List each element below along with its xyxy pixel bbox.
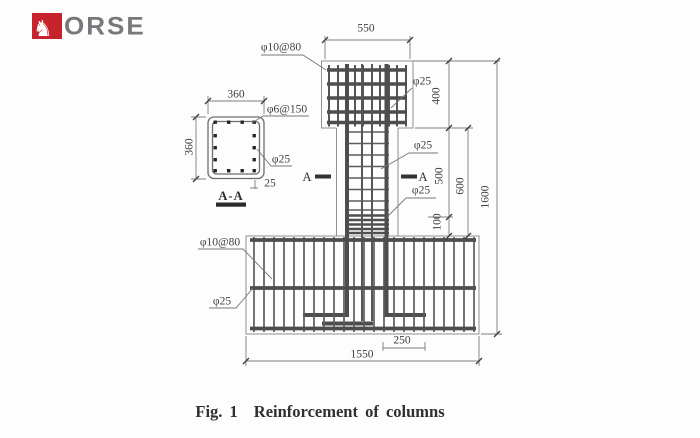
- head-bar-label: φ25: [413, 76, 431, 88]
- footing-stirrup-label: φ10@80: [200, 237, 240, 249]
- section-title: A-A: [218, 190, 243, 203]
- dim-360-left-label: 360: [184, 138, 196, 155]
- reinforcement-diagram-linework: [0, 0, 700, 438]
- dim-100-label: 100: [432, 213, 444, 230]
- column-bar-lower-label: φ25: [412, 185, 430, 197]
- dim-1550-label: 1550: [351, 349, 374, 361]
- figure-page: ♞ ORSE: [0, 0, 700, 438]
- dim-1600-label: 1600: [480, 186, 492, 209]
- head-stirrup-label: φ10@80: [261, 42, 301, 54]
- column-head-rebar: [327, 65, 407, 127]
- section-marker-a-right: A: [418, 171, 427, 184]
- section-stirrup-label: φ6@150: [267, 104, 307, 116]
- dim-550-label: 550: [357, 23, 374, 35]
- section-marker-a-left: A: [302, 171, 311, 184]
- section-rebar-dots: [214, 121, 256, 173]
- cover-25-label: 25: [264, 178, 276, 190]
- dim-400-label: 400: [431, 87, 443, 104]
- section-bar-label: φ25: [272, 154, 290, 166]
- column-bar-upper-label: φ25: [414, 140, 432, 152]
- section-title-underline: [216, 203, 246, 207]
- dim-600-label: 600: [455, 177, 467, 194]
- dim-360-top-label: 360: [227, 89, 244, 101]
- figure-title: Reinforcement of columns: [254, 402, 445, 421]
- footing-bar-label: φ25: [213, 296, 231, 308]
- dim-500-label: 500: [434, 167, 446, 184]
- figure-number: Fig. 1: [195, 402, 237, 421]
- figure-caption: Fig. 1Reinforcement of columns: [0, 402, 640, 422]
- dim-250-label: 250: [393, 335, 410, 347]
